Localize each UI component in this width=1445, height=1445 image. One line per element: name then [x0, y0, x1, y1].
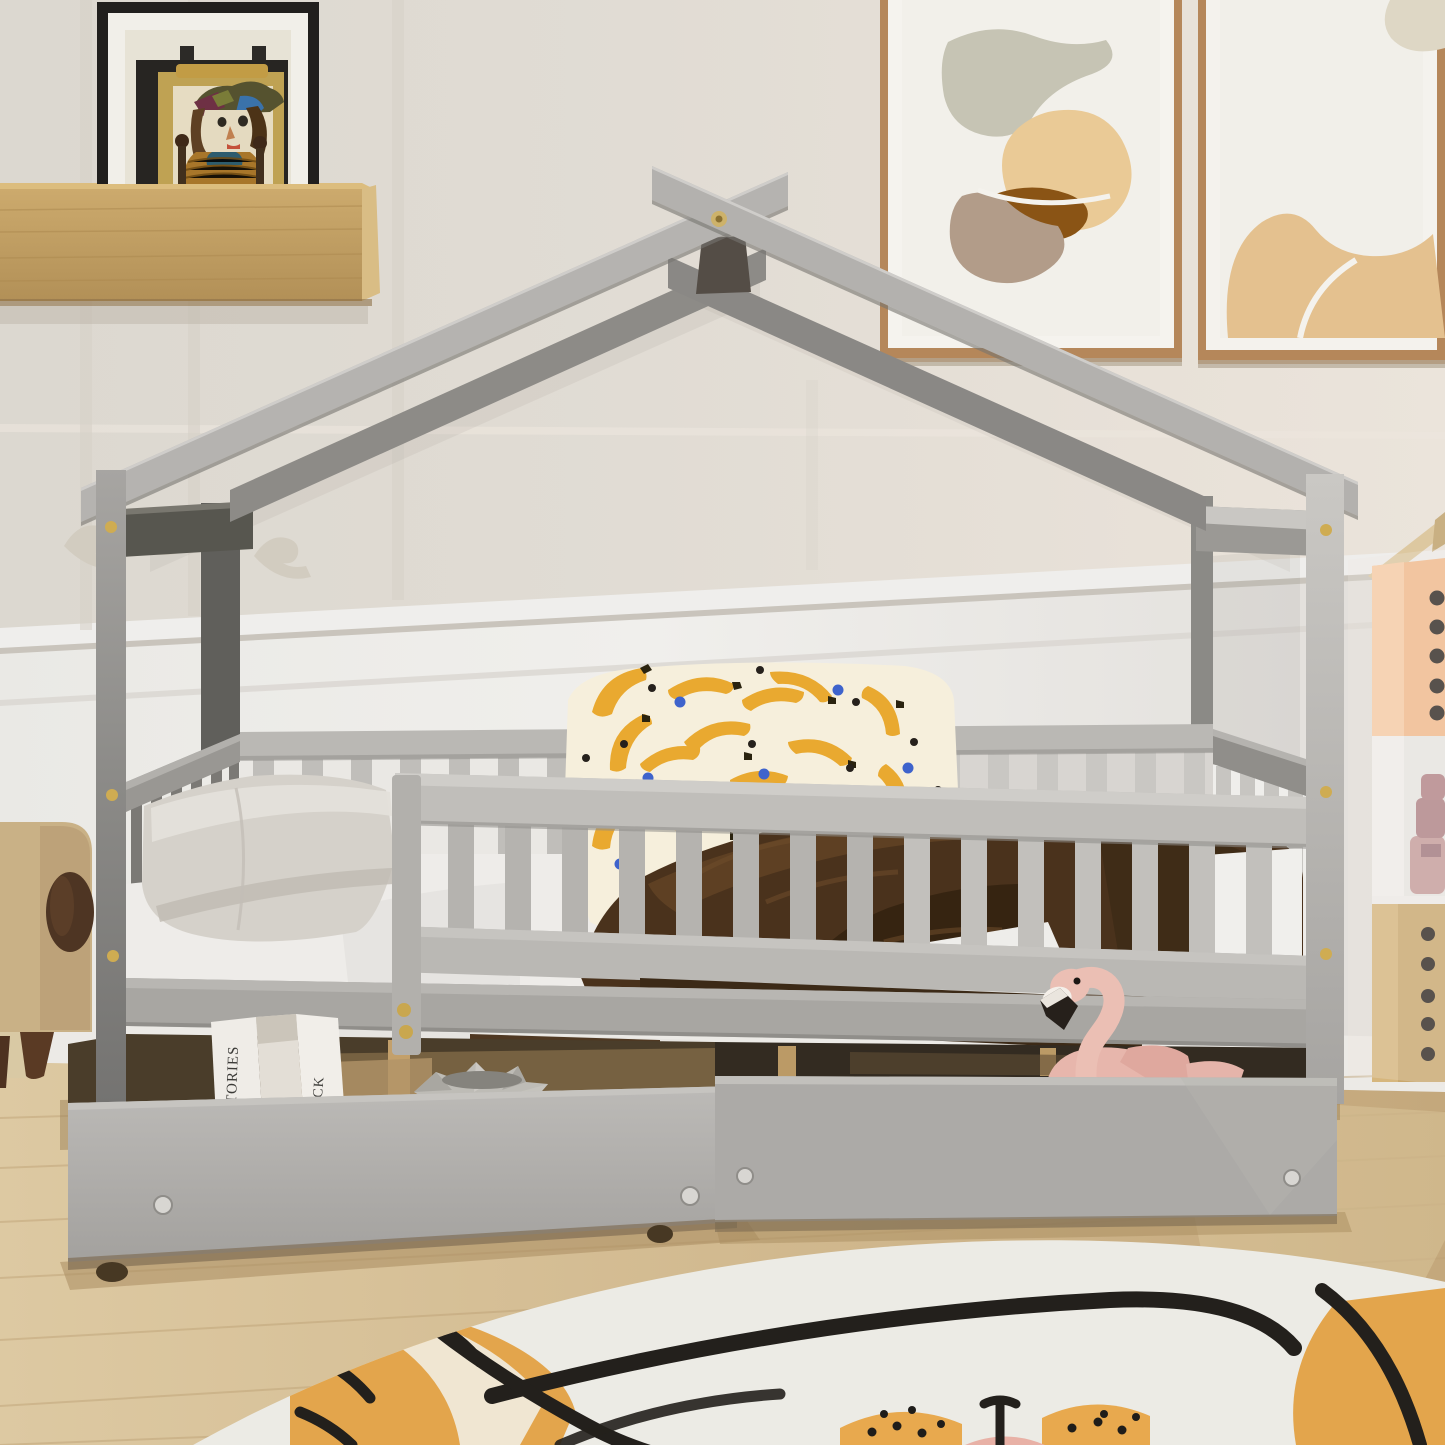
svg-text:TORIES: TORIES [224, 1045, 242, 1104]
svg-text:CK: CK [311, 1076, 327, 1098]
